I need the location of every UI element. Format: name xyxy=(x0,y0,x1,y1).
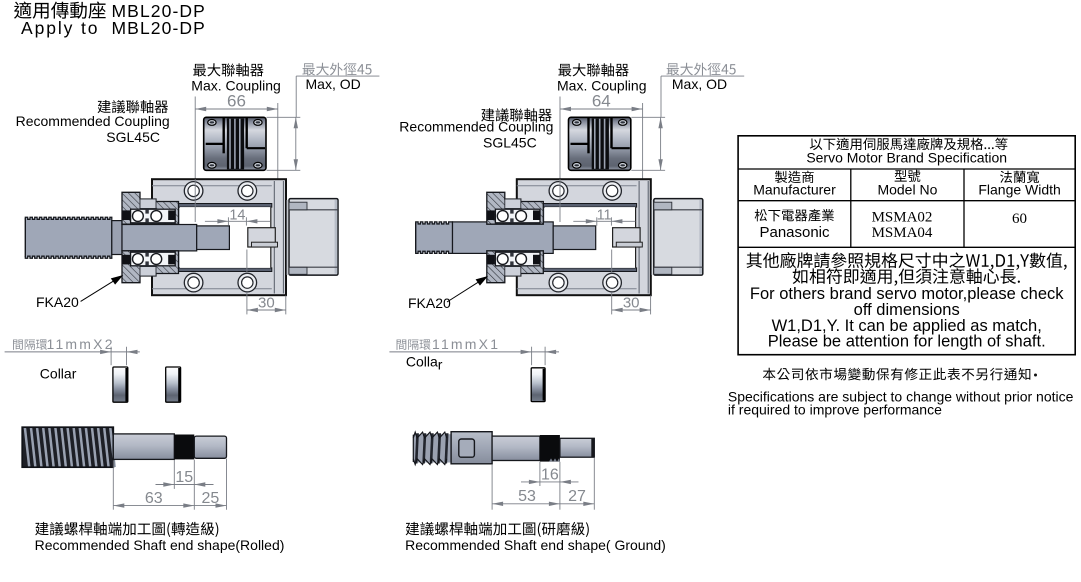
svg-text:30: 30 xyxy=(258,295,275,312)
svg-text:53: 53 xyxy=(518,488,536,505)
svg-text:Recommended Shaft end shape( G: Recommended Shaft end shape( Ground) xyxy=(405,537,666,553)
svg-text:30: 30 xyxy=(623,295,640,312)
svg-text:Recommended Shaft end shape(Ro: Recommended Shaft end shape(Rolled) xyxy=(35,537,285,553)
svg-text:Max, OD: Max, OD xyxy=(672,76,727,92)
svg-text:FKA20: FKA20 xyxy=(36,294,79,310)
svg-text:Collar: Collar xyxy=(40,366,77,382)
svg-text:Max, OD: Max, OD xyxy=(306,76,361,92)
svg-text:63: 63 xyxy=(145,490,163,507)
svg-text:if required to improve perform: if required to improve performance xyxy=(728,402,942,418)
svg-text:66: 66 xyxy=(227,92,246,111)
svg-text:Flange Width: Flange Width xyxy=(978,182,1060,198)
svg-text:Max. Coupling: Max. Coupling xyxy=(557,77,647,93)
svg-text:25: 25 xyxy=(202,490,220,507)
svg-text:MSMA04: MSMA04 xyxy=(872,225,933,241)
svg-text:Please be attention for length: Please be attention for length of shaft. xyxy=(768,333,1046,351)
svg-text:Manufacturer: Manufacturer xyxy=(753,182,836,198)
svg-text:MSMA02: MSMA02 xyxy=(872,209,933,225)
svg-text:Model No: Model No xyxy=(877,182,937,198)
svg-text:SGL45C: SGL45C xyxy=(483,134,537,150)
svg-text:Recommended Coupling: Recommended Coupling xyxy=(399,118,553,134)
svg-text:Servo Motor Brand Specificatio: Servo Motor Brand Specification xyxy=(806,149,1007,165)
svg-text:64: 64 xyxy=(592,92,611,111)
svg-text:11: 11 xyxy=(597,207,612,223)
svg-text:11mmX1: 11mmX1 xyxy=(432,336,500,352)
svg-text:FKA20: FKA20 xyxy=(408,295,451,311)
svg-text:14: 14 xyxy=(229,207,245,223)
svg-text:Recommended Coupling: Recommended Coupling xyxy=(16,113,170,129)
svg-text:16: 16 xyxy=(541,466,559,483)
svg-text:15: 15 xyxy=(175,469,193,486)
svg-text:SGL45C: SGL45C xyxy=(106,129,160,145)
svg-text:Panasonic: Panasonic xyxy=(759,224,830,241)
svg-text:Apply to: Apply to xyxy=(21,18,99,38)
svg-text:60: 60 xyxy=(1012,211,1027,227)
svg-text:27: 27 xyxy=(568,488,586,505)
svg-text:Max. Coupling: Max. Coupling xyxy=(191,77,280,93)
svg-text:MBL20-DP: MBL20-DP xyxy=(112,18,206,38)
svg-text:r: r xyxy=(438,357,443,373)
svg-text:11mmX2: 11mmX2 xyxy=(47,336,115,352)
svg-text:Colla: Colla xyxy=(406,354,438,370)
